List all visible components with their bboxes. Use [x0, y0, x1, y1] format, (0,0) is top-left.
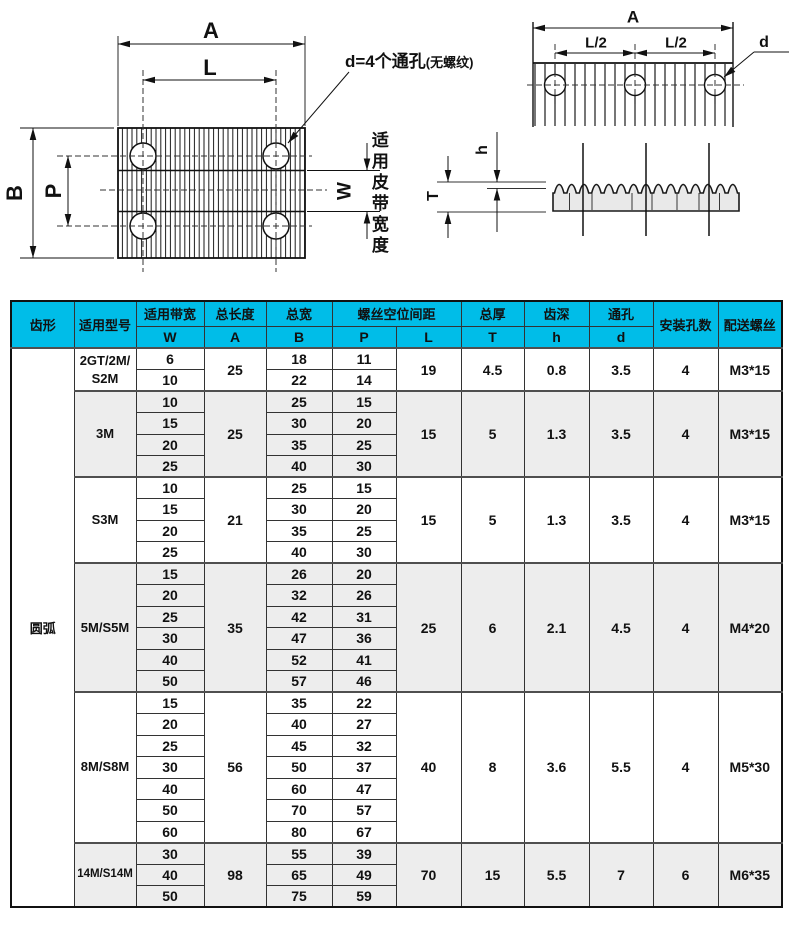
col-header-tooth-profile: 齿形 — [11, 301, 74, 348]
cell-w: 6 — [136, 348, 204, 370]
cell-w: 40 — [136, 649, 204, 671]
cell-p: 15 — [332, 477, 396, 499]
cell-w: 15 — [136, 563, 204, 585]
col-header-total-length: 总长度 — [204, 301, 266, 326]
cell-b: 25 — [266, 477, 332, 499]
cell-w: 20 — [136, 434, 204, 456]
dim-label-W: W — [336, 182, 355, 200]
cell-a: 25 — [204, 348, 266, 391]
cell-t: 8 — [461, 692, 524, 843]
cell-model: 8M/S8M — [74, 692, 136, 843]
screw-position-lines — [583, 143, 709, 236]
cell-mount-holes: 4 — [653, 348, 718, 391]
cell-a: 56 — [204, 692, 266, 843]
col-subheader-b: B — [266, 326, 332, 348]
col-header-mount-holes: 安装孔数 — [653, 301, 718, 348]
cell-p: 30 — [332, 456, 396, 478]
cell-w: 50 — [136, 800, 204, 822]
cell-a: 35 — [204, 563, 266, 692]
cell-b: 65 — [266, 864, 332, 886]
cell-h: 1.3 — [524, 391, 589, 477]
cell-l: 40 — [396, 692, 461, 843]
col-header-total-width: 总宽 — [266, 301, 332, 326]
spec-sheet: A L B P W 适用皮带宽度 d=4个通孔(无螺纹) A L/2 L/2 d… — [0, 0, 790, 950]
cell-model: 14M/S14M — [74, 843, 136, 908]
cell-mount-holes: 4 — [653, 563, 718, 692]
col-header-thickness: 总厚 — [461, 301, 524, 326]
cell-p: 25 — [332, 434, 396, 456]
through-hole-note-main: d=4个通孔 — [345, 52, 426, 71]
cell-l: 15 — [396, 477, 461, 563]
cell-b: 52 — [266, 649, 332, 671]
cell-b: 35 — [266, 434, 332, 456]
cell-b: 42 — [266, 606, 332, 628]
cell-h: 5.5 — [524, 843, 589, 908]
cell-w: 30 — [136, 843, 204, 865]
cell-b: 35 — [266, 520, 332, 542]
cell-h: 1.3 — [524, 477, 589, 563]
col-subheader-a: A — [204, 326, 266, 348]
cell-d: 3.5 — [589, 477, 653, 563]
col-header-tooth-depth: 齿深 — [524, 301, 589, 326]
table-row: S3M102125151551.33.54M3*15 — [11, 477, 782, 499]
cell-w: 10 — [136, 391, 204, 413]
cell-w: 10 — [136, 477, 204, 499]
cell-p: 20 — [332, 499, 396, 521]
cell-w: 10 — [136, 370, 204, 392]
col-subheader-h: h — [524, 326, 589, 348]
dim-label-A: A — [203, 20, 219, 42]
cell-w: 15 — [136, 499, 204, 521]
cell-screw: M3*15 — [718, 391, 782, 477]
cell-b: 40 — [266, 714, 332, 736]
through-hole-note: d=4个通孔(无螺纹) — [345, 47, 473, 72]
cell-p: 47 — [332, 778, 396, 800]
cell-d: 7 — [589, 843, 653, 908]
cell-w: 30 — [136, 628, 204, 650]
table-row: 14M/S14M3098553970155.576M6*35 — [11, 843, 782, 865]
plate-top-view — [527, 22, 789, 127]
cell-w: 50 — [136, 671, 204, 693]
cell-a: 21 — [204, 477, 266, 563]
cell-model: 2GT/2M/ S2M — [74, 348, 136, 391]
cell-screw: M3*15 — [718, 477, 782, 563]
cell-w: 60 — [136, 821, 204, 843]
cell-p: 59 — [332, 886, 396, 908]
thickness-reference-lines — [437, 182, 546, 212]
cell-mount-holes: 6 — [653, 843, 718, 908]
belt-width-note: 适用皮带宽度 — [369, 131, 387, 257]
cell-p: 36 — [332, 628, 396, 650]
spec-table: 齿形 适用型号 适用带宽 总长度 总宽 螺丝空位间距 总厚 齿深 通孔 安装孔数… — [10, 300, 783, 908]
dim-label-h: h — [475, 145, 491, 155]
dim-label-d: d — [759, 35, 769, 51]
cell-d: 4.5 — [589, 563, 653, 692]
cell-p: 31 — [332, 606, 396, 628]
cell-l: 15 — [396, 391, 461, 477]
cell-b: 80 — [266, 821, 332, 843]
cell-model: 3M — [74, 391, 136, 477]
cell-b: 32 — [266, 585, 332, 607]
cell-w: 25 — [136, 456, 204, 478]
cell-b: 57 — [266, 671, 332, 693]
cell-p: 41 — [332, 649, 396, 671]
cell-p: 46 — [332, 671, 396, 693]
cell-w: 40 — [136, 778, 204, 800]
dim-label-B: B — [4, 185, 26, 201]
cell-p: 26 — [332, 585, 396, 607]
cell-p: 11 — [332, 348, 396, 370]
col-subheader-l: L — [396, 326, 461, 348]
cell-tooth-profile: 圆弧 — [11, 348, 74, 907]
cell-l: 70 — [396, 843, 461, 908]
spec-table-header: 齿形 适用型号 适用带宽 总长度 总宽 螺丝空位间距 总厚 齿深 通孔 安装孔数… — [11, 301, 782, 348]
cell-w: 20 — [136, 714, 204, 736]
cell-b: 50 — [266, 757, 332, 779]
header-row-1: 齿形 适用型号 适用带宽 总长度 总宽 螺丝空位间距 总厚 齿深 通孔 安装孔数… — [11, 301, 782, 326]
cell-l: 19 — [396, 348, 461, 391]
cell-p: 49 — [332, 864, 396, 886]
cell-w: 50 — [136, 886, 204, 908]
cell-l: 25 — [396, 563, 461, 692]
cell-screw: M6*35 — [718, 843, 782, 908]
cell-w: 40 — [136, 864, 204, 886]
cell-b: 45 — [266, 735, 332, 757]
cell-t: 5 — [461, 477, 524, 563]
dim-label-L2-left: L/2 — [585, 36, 607, 51]
cell-t: 5 — [461, 391, 524, 477]
cell-w: 20 — [136, 520, 204, 542]
cell-b: 35 — [266, 692, 332, 714]
cell-w: 30 — [136, 757, 204, 779]
cell-t: 6 — [461, 563, 524, 692]
col-subheader-p: P — [332, 326, 396, 348]
cell-b: 40 — [266, 542, 332, 564]
cell-p: 22 — [332, 692, 396, 714]
cell-h: 3.6 — [524, 692, 589, 843]
cell-mount-holes: 4 — [653, 391, 718, 477]
cell-d: 3.5 — [589, 391, 653, 477]
cell-p: 39 — [332, 843, 396, 865]
cell-mount-holes: 4 — [653, 477, 718, 563]
cell-b: 25 — [266, 391, 332, 413]
cell-p: 37 — [332, 757, 396, 779]
dim-label-L2-right: L/2 — [665, 36, 687, 51]
dim-label-L: L — [203, 57, 216, 79]
col-header-screws: 配送螺丝 — [718, 301, 782, 348]
cell-p: 25 — [332, 520, 396, 542]
cell-h: 2.1 — [524, 563, 589, 692]
dim-label-A-top-view: A — [627, 9, 639, 26]
cell-p: 20 — [332, 413, 396, 435]
cell-b: 47 — [266, 628, 332, 650]
cell-d: 5.5 — [589, 692, 653, 843]
cell-b: 40 — [266, 456, 332, 478]
cell-p: 15 — [332, 391, 396, 413]
cell-p: 30 — [332, 542, 396, 564]
cell-p: 57 — [332, 800, 396, 822]
cell-model: 5M/S5M — [74, 563, 136, 692]
cell-a: 98 — [204, 843, 266, 908]
cell-a: 25 — [204, 391, 266, 477]
dim-label-P: P — [43, 184, 65, 199]
cell-d: 3.5 — [589, 348, 653, 391]
spec-table-body: 圆弧2GT/2M/ S2M6251811194.50.83.54M3*15102… — [11, 348, 782, 907]
cell-w: 15 — [136, 692, 204, 714]
cell-w: 20 — [136, 585, 204, 607]
cell-b: 70 — [266, 800, 332, 822]
through-hole-note-paren: (无螺纹) — [426, 55, 474, 70]
col-header-bandwidth: 适用带宽 — [136, 301, 204, 326]
cell-w: 15 — [136, 413, 204, 435]
col-header-through-hole: 通孔 — [589, 301, 653, 326]
cell-b: 22 — [266, 370, 332, 392]
table-row: 3M102525151551.33.54M3*15 — [11, 391, 782, 413]
cell-w: 25 — [136, 542, 204, 564]
table-row: 8M/S8M155635224083.65.54M5*30 — [11, 692, 782, 714]
cell-mount-holes: 4 — [653, 692, 718, 843]
cell-b: 30 — [266, 499, 332, 521]
cell-screw: M3*15 — [718, 348, 782, 391]
col-subheader-d: d — [589, 326, 653, 348]
cell-w: 25 — [136, 606, 204, 628]
cell-h: 0.8 — [524, 348, 589, 391]
cell-model: S3M — [74, 477, 136, 563]
cell-p: 20 — [332, 563, 396, 585]
cell-p: 14 — [332, 370, 396, 392]
col-subheader-t: T — [461, 326, 524, 348]
cell-b: 75 — [266, 886, 332, 908]
cell-p: 67 — [332, 821, 396, 843]
cell-t: 15 — [461, 843, 524, 908]
cell-b: 60 — [266, 778, 332, 800]
cell-w: 25 — [136, 735, 204, 757]
cell-b: 26 — [266, 563, 332, 585]
plate-front-view — [20, 36, 380, 272]
table-row: 圆弧2GT/2M/ S2M6251811194.50.83.54M3*15 — [11, 348, 782, 370]
cell-screw: M4*20 — [718, 563, 782, 692]
col-subheader-w: W — [136, 326, 204, 348]
cell-b: 30 — [266, 413, 332, 435]
cell-t: 4.5 — [461, 348, 524, 391]
cell-b: 18 — [266, 348, 332, 370]
table-row: 5M/S5M153526202562.14.54M4*20 — [11, 563, 782, 585]
dim-label-T: T — [426, 191, 442, 201]
cell-screw: M5*30 — [718, 692, 782, 843]
cell-p: 32 — [332, 735, 396, 757]
col-header-screw-spacing: 螺丝空位间距 — [332, 301, 461, 326]
cell-p: 27 — [332, 714, 396, 736]
cell-b: 55 — [266, 843, 332, 865]
col-header-model: 适用型号 — [74, 301, 136, 348]
